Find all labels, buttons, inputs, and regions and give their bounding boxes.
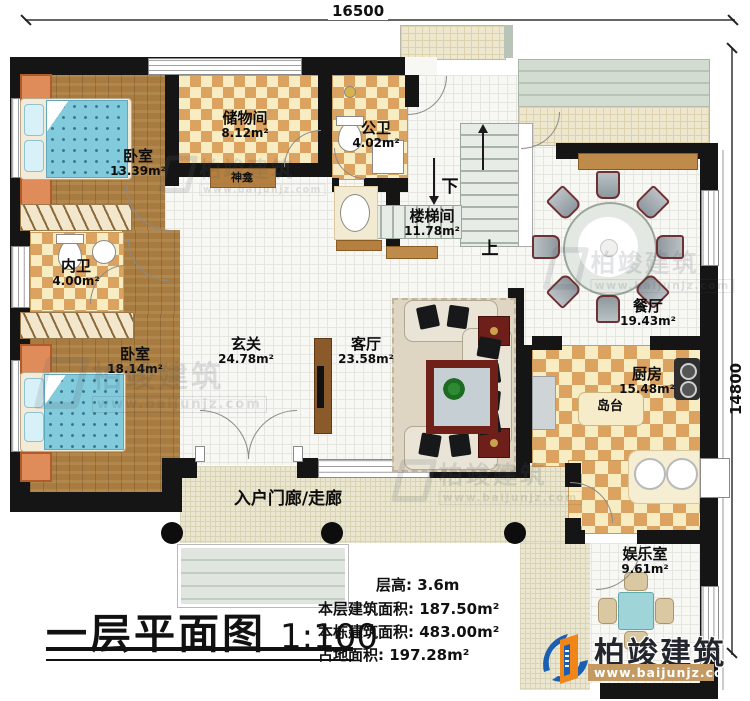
sideboard [578, 153, 698, 170]
floor-plan: 卧室 13.39m² 储物间 8.12m² 公卫 4.02m² 楼梯间 11.7… [0, 0, 750, 701]
room-name: 储物间 [195, 110, 295, 127]
room-name: 公卫 [326, 120, 426, 137]
stat-label: 占地面积: [318, 646, 384, 664]
nightstand [20, 344, 52, 374]
room-area: 8.12m² [195, 127, 295, 140]
dining-chair [532, 235, 560, 259]
room-name: 玄关 [196, 336, 296, 353]
dimension-right-value: 14800 [727, 359, 745, 419]
toilet-tank [56, 234, 84, 244]
stat-footprint-area: 占地面积: 197.28m² [318, 644, 518, 665]
brand-logo: 柏竣建筑 www.baijunjz.com [538, 624, 718, 694]
bed-mattress [44, 374, 124, 450]
room-name: 娱乐室 [595, 546, 695, 563]
brand-logo-icon [538, 626, 592, 688]
room-area: 24.78m² [196, 353, 296, 366]
floor-drain-icon [344, 86, 356, 98]
door-gap [405, 57, 437, 75]
room-label-entertainment: 娱乐室 9.61m² [595, 546, 695, 576]
porch-column [504, 522, 526, 544]
feature-name: 神龛 [231, 171, 253, 184]
room-area: 11.78m² [372, 225, 492, 238]
room-label-kitchen: 厨房 15.48m² [597, 366, 697, 396]
dimension-line-right [731, 48, 733, 655]
bed-pillow [24, 104, 44, 136]
shelf [386, 246, 438, 259]
room-name: 卧室 [85, 346, 185, 363]
game-chair [655, 598, 674, 624]
dining-chair [596, 171, 620, 199]
stat-value: 197.28m² [389, 646, 469, 664]
stat-value: 483.00m² [419, 623, 499, 641]
room-area: 4.00m² [26, 275, 126, 288]
room-name: 入户门廊/走廊 [234, 489, 342, 509]
sofa-cushion [447, 305, 470, 330]
room-name: 客厅 [316, 336, 416, 353]
feature-name: 岛台 [597, 399, 623, 414]
window [701, 190, 719, 266]
stair-down-arrowhead [429, 196, 439, 205]
porch-column [161, 522, 183, 544]
room-label-stair-hall: 楼梯间 11.78m² [372, 208, 492, 238]
dimension-top-value: 16500 [328, 2, 388, 20]
room-name: 内卫 [26, 258, 126, 275]
room-label-storage: 储物间 8.12m² [195, 110, 295, 140]
room-name: 厨房 [597, 366, 697, 383]
stairs-up-label: 上 [478, 240, 502, 259]
shelf [336, 240, 382, 251]
sofa-cushion [476, 336, 501, 360]
title-underline [46, 647, 353, 661]
wardrobe [20, 204, 132, 231]
stat-label: 本栋建筑面积: [318, 623, 414, 641]
room-label-bedroom1: 卧室 13.39m² [88, 148, 188, 178]
dining-table-center [600, 239, 618, 257]
room-label-dining: 餐厅 19.43m² [598, 298, 698, 328]
room-name: 楼梯间 [372, 208, 492, 225]
feature-name: 上 [482, 239, 499, 259]
plant-icon [443, 378, 465, 400]
island-label: 岛台 [580, 400, 640, 415]
stat-building-area: 本栋建筑面积: 483.00m² [318, 621, 518, 642]
room-label-public-bath: 公卫 4.02m² [326, 120, 426, 150]
bed-pillow [24, 412, 44, 442]
bed-pillow [24, 140, 44, 172]
room-area: 18.14m² [85, 363, 185, 376]
room-area: 19.43m² [598, 315, 698, 328]
wall [700, 343, 718, 461]
kitchen-sink-icon [634, 458, 666, 490]
bed-pillow [24, 378, 44, 408]
room-area: 4.02m² [326, 137, 426, 150]
room-label-inner-bath: 内卫 4.00m² [26, 258, 126, 288]
dining-chair [656, 235, 684, 259]
wall [532, 336, 562, 350]
brand-website: www.baijunjz.com [594, 665, 738, 680]
room-area: 15.48m² [597, 383, 697, 396]
game-chair [598, 598, 617, 624]
wall [565, 530, 585, 544]
prep-counter [532, 376, 556, 430]
stair-down-arrow [433, 158, 435, 198]
stat-label: 层高: [376, 576, 412, 594]
shrine-label: 神龛 [212, 172, 272, 184]
stair-up-arrowhead [478, 124, 488, 133]
washbasin-icon [340, 194, 370, 232]
sofa-cushion [418, 432, 442, 457]
room-label-foyer: 玄关 24.78m² [196, 336, 296, 366]
patio-edge [504, 25, 513, 58]
nightstand [20, 452, 52, 482]
stairs-down-label: 下 [438, 178, 462, 197]
stat-floor-height: 层高: 3.6m [318, 574, 576, 595]
room-name: 餐厅 [598, 298, 698, 315]
room-label-living: 客厅 23.58m² [316, 336, 416, 366]
stat-value: 187.50m² [419, 600, 499, 618]
room-name: 卧室 [88, 148, 188, 165]
patio-tile [400, 25, 506, 60]
wardrobe [20, 312, 134, 339]
stair-up-arrow [482, 132, 484, 170]
stat-label: 本层建筑面积: [318, 600, 414, 618]
sofa-cushion [449, 433, 472, 458]
wall [637, 530, 712, 544]
exterior-niche [700, 458, 730, 498]
room-area: 13.39m² [88, 165, 188, 178]
room-label-bedroom2: 卧室 18.14m² [85, 346, 185, 376]
kitchen-sink-icon [666, 458, 698, 490]
eave-line [722, 150, 724, 690]
stat-floor-area: 本层建筑面积: 187.50m² [318, 598, 518, 619]
room-area: 9.61m² [595, 563, 695, 576]
room-area: 23.58m² [316, 353, 416, 366]
wall [10, 492, 182, 512]
window [148, 58, 302, 75]
porch-column [321, 522, 343, 544]
tv-icon [317, 366, 324, 408]
stat-value: 3.6m [417, 576, 459, 594]
terrace-deck [518, 59, 710, 108]
sofa-cushion [416, 304, 440, 330]
coffee-table [426, 360, 498, 434]
feature-name: 下 [442, 177, 459, 197]
room-label-porch: 入户门廊/走廊 [188, 490, 388, 509]
wall [162, 458, 182, 512]
